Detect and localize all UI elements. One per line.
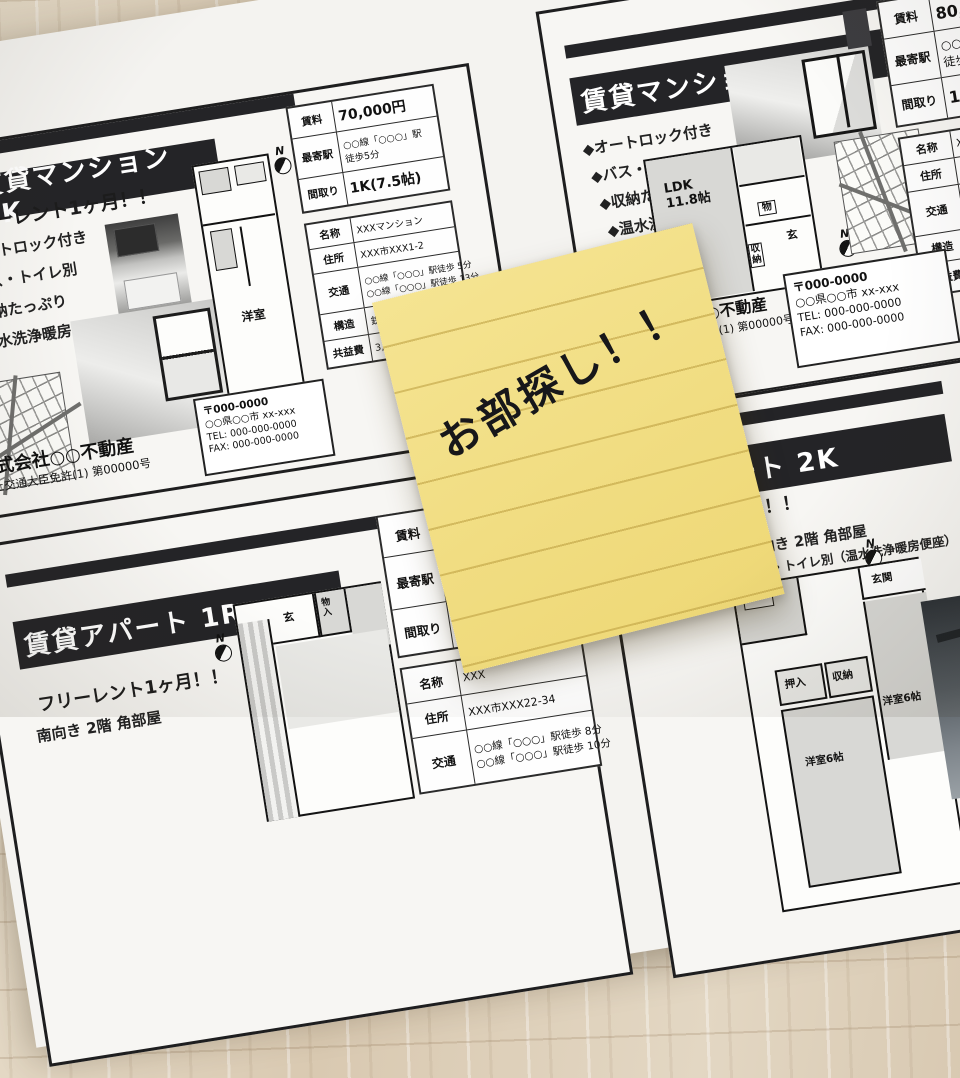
- plan-entrance-label: 玄: [786, 229, 799, 243]
- floor-plan-1r: 玄 物入: [233, 581, 416, 822]
- sticky-note-text: お部探し！！: [425, 280, 695, 471]
- flyer-1k-feature: バス・トイレ別: [0, 258, 79, 295]
- photo-fragment: [842, 8, 872, 49]
- flyer-1r-promo: フリーレント1ヶ月！！: [36, 661, 230, 717]
- row-value: 80,000円: [929, 0, 960, 31]
- plan-closet-label: 物: [757, 200, 777, 216]
- row-label: 間取り: [392, 602, 454, 656]
- row-label: 最寄駅: [884, 32, 942, 85]
- flyer-1r-title: 賃貸アパート 1R: [21, 592, 245, 663]
- plan-entrance-label: 玄: [282, 611, 295, 625]
- row-label: 交通: [908, 185, 960, 236]
- flyer-1k-feature: 収納たっぷり: [0, 290, 69, 325]
- row-label: 交通: [413, 730, 476, 792]
- row-label: 共益費: [325, 335, 374, 368]
- row-label: 交通: [314, 268, 365, 315]
- plan-room-label: 洋室: [241, 308, 267, 325]
- row-label: 間取り: [299, 173, 348, 212]
- compass-icon: N: [271, 143, 293, 175]
- row-label: 最寄駅: [293, 132, 344, 179]
- row-label: 間取り: [892, 78, 949, 125]
- plan-storage-label: 収納: [748, 242, 766, 268]
